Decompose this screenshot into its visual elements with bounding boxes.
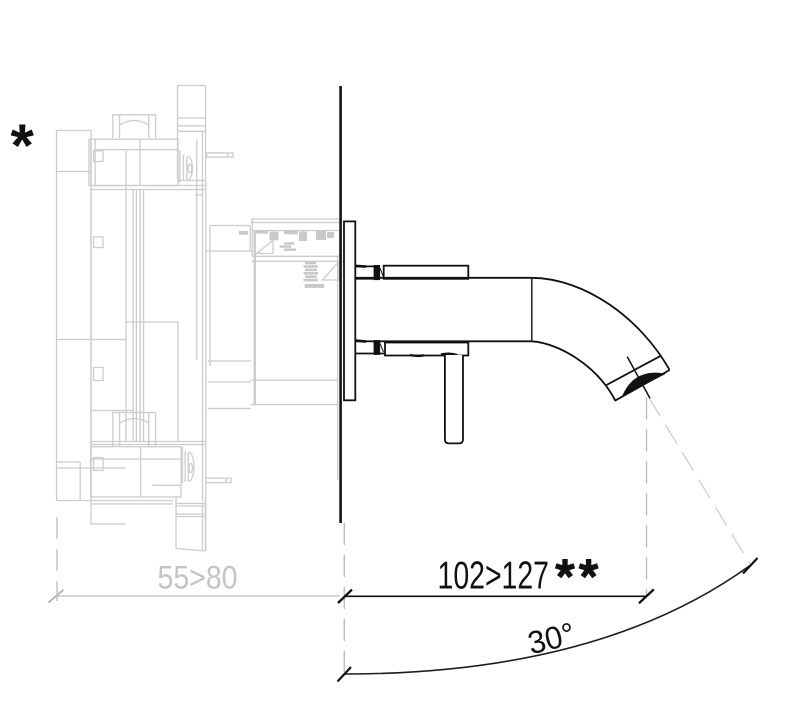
svg-text:102>127: 102>127 — [438, 554, 550, 597]
svg-text:*: * — [11, 112, 35, 179]
svg-text:55>80: 55>80 — [158, 560, 238, 596]
